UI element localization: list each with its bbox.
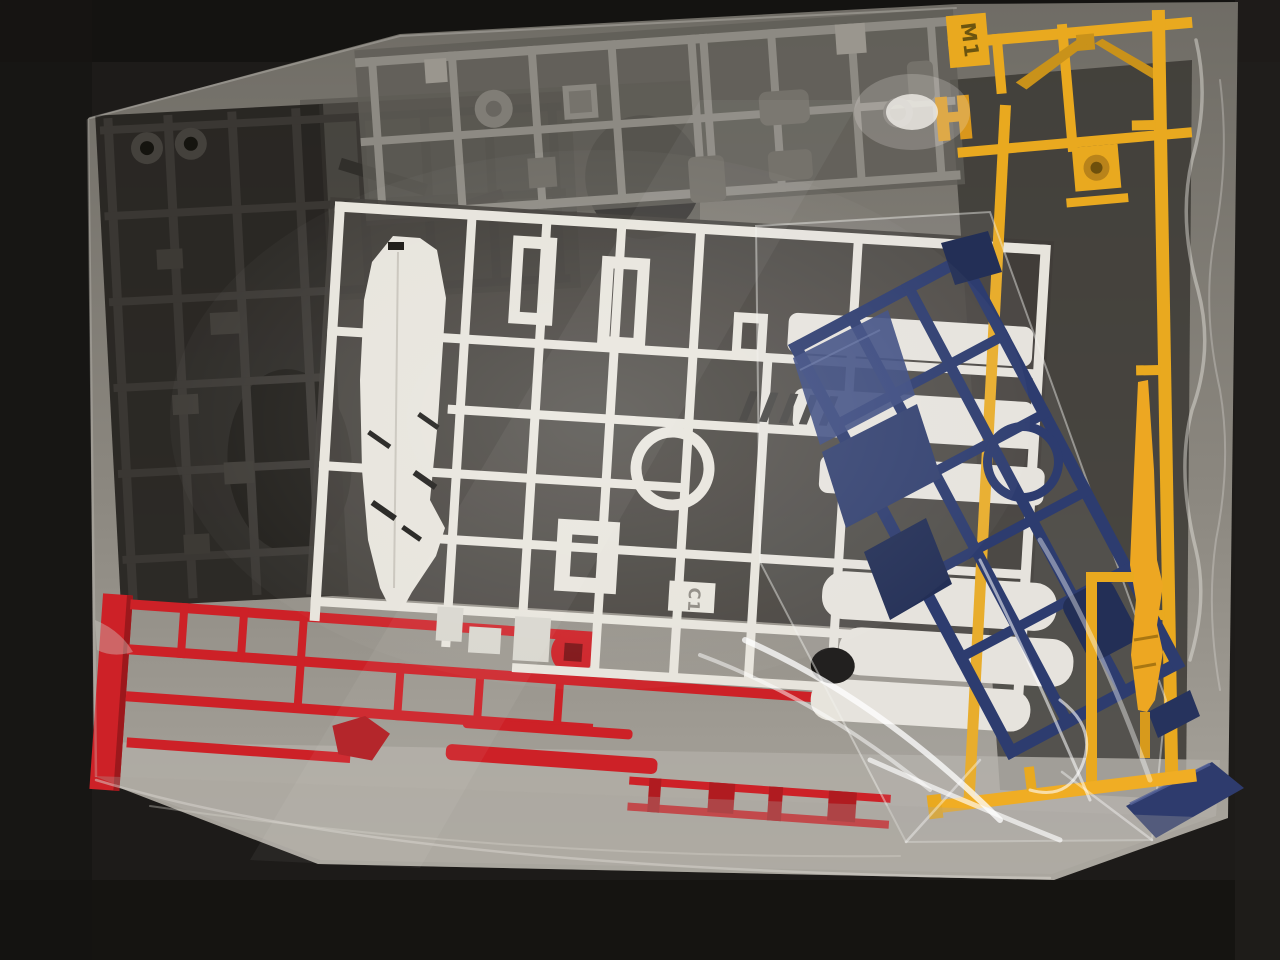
photo-model-kit-runners: C1 M1 (0, 0, 1280, 960)
svg-text:M1: M1 (956, 21, 984, 59)
runner-tag-m1: M1 (946, 13, 990, 68)
